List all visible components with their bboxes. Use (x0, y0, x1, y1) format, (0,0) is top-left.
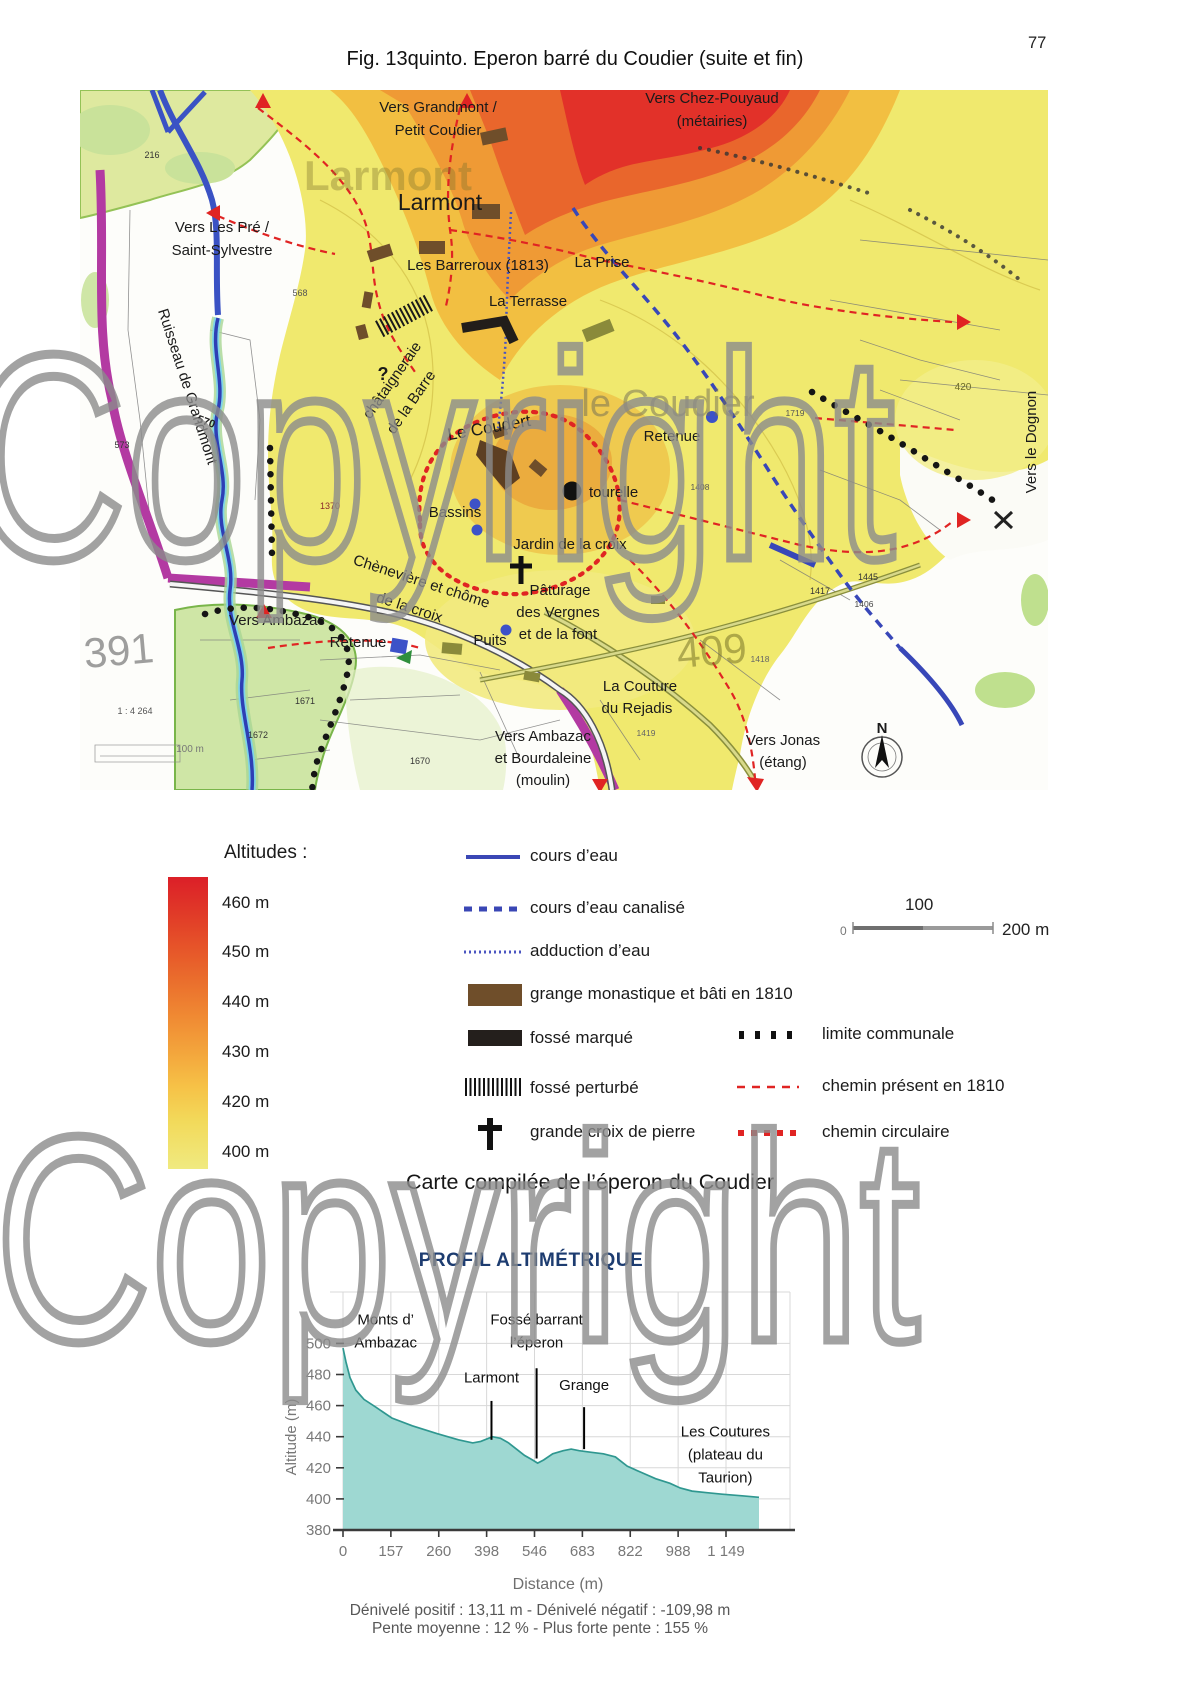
map-label: La Prise (574, 254, 629, 271)
chemin-circulaire-swatch (735, 1126, 801, 1140)
map-label: Saint-Sylvestre (172, 242, 273, 259)
scale-bar (835, 918, 1005, 938)
map-label: 1 : 4 264 (117, 706, 152, 716)
svg-text:Les Coutures: Les Coutures (681, 1424, 770, 1441)
altitude-label: 400 m (222, 1142, 269, 1162)
map-label: Puits (473, 632, 506, 649)
chart-xlabel: Distance (m) (513, 1576, 604, 1593)
map-label: N (877, 720, 888, 737)
legend-label: fossé perturbé (530, 1078, 639, 1098)
svg-text:1 149: 1 149 (707, 1543, 745, 1560)
map-label: 1419 (637, 728, 656, 738)
legend-altitudes-title: Altitudes : (224, 842, 307, 864)
map-label: ? (378, 364, 389, 384)
map-label: 100 m (176, 744, 204, 755)
limite-communale-swatch (735, 1028, 801, 1042)
map: Vers Grandmont /Petit CoudierVers Chez-P… (80, 90, 1048, 790)
legend-label: chemin présent en 1810 (822, 1076, 1004, 1096)
map-label: 573 (114, 440, 129, 450)
map-label: Pâturage (530, 582, 591, 599)
map-label: Larmont (398, 189, 483, 215)
map-label: 568 (292, 288, 307, 298)
map-label: 1671 (295, 696, 315, 706)
legend-label: chemin circulaire (822, 1122, 950, 1142)
document-page: Fig. 13quinto. Eperon barré du Coudier (… (0, 0, 1191, 1684)
cours-eau-swatch (462, 850, 524, 864)
map-label: Vers Ambazac (229, 612, 325, 629)
map-label: La Terrasse (489, 293, 567, 310)
fosse-perturbe-swatch (462, 1076, 526, 1098)
figure-title: Fig. 13quinto. Eperon barré du Coudier (… (250, 48, 900, 71)
map-label: 1719 (786, 408, 805, 418)
svg-text:Larmont: Larmont (464, 1369, 520, 1386)
scale-zero: 0 (840, 924, 847, 938)
map-label: La Couture (603, 678, 677, 695)
map-label: Petit Coudier (395, 122, 482, 139)
legend-label: cours d’eau canalisé (530, 898, 685, 918)
svg-text:Taurion): Taurion) (698, 1470, 752, 1487)
map-label: 216 (144, 150, 159, 160)
map-label: et de la font (519, 626, 598, 643)
map-label: tourelle (589, 484, 638, 501)
map-label: 391 (82, 624, 156, 677)
svg-text:822: 822 (618, 1543, 643, 1560)
map-label: (métairies) (677, 113, 748, 130)
svg-text:Ambazac: Ambazac (354, 1335, 417, 1352)
legend-label: limite communale (822, 1024, 954, 1044)
map-label: Les Barreroux (1813) (407, 257, 549, 274)
svg-text:988: 988 (666, 1543, 691, 1560)
map-label: Vers Ambazac (495, 728, 591, 745)
svg-text:(plateau du: (plateau du (688, 1447, 763, 1464)
map-label: Vers Les Pré / (175, 219, 270, 236)
legend-label: cours d’eau (530, 846, 618, 866)
map-label: Retenue (330, 634, 387, 651)
altitude-label: 460 m (222, 893, 269, 913)
svg-text:460: 460 (306, 1398, 331, 1415)
svg-text:260: 260 (426, 1543, 451, 1560)
map-label: (châtellenie) (1046, 401, 1048, 483)
map-label: (étang) (759, 754, 807, 771)
altitude-label: 440 m (222, 992, 269, 1012)
svg-text:Monts d’: Monts d’ (357, 1312, 414, 1329)
svg-text:440: 440 (306, 1429, 331, 1446)
svg-text:420: 420 (306, 1460, 331, 1477)
svg-text:500: 500 (306, 1335, 331, 1352)
grange-swatch (466, 982, 524, 1008)
map-label: et Bourdaleine (495, 750, 592, 767)
map-label: 1670 (410, 756, 430, 766)
altitude-label: 450 m (222, 942, 269, 962)
map-label: Vers Chez-Pouyaud (645, 90, 778, 107)
legend-altitude-colorbar (168, 877, 208, 1169)
scale-200m: 200 m (1002, 920, 1049, 940)
scale-100: 100 (905, 895, 933, 915)
chart-ylabel: Altitude (m) (283, 1399, 300, 1476)
map-label: 420 (955, 382, 972, 393)
svg-text:480: 480 (306, 1367, 331, 1384)
map-label: du Rejadis (602, 700, 673, 717)
retenue-icon (390, 638, 408, 655)
page-number: 77 (1028, 34, 1046, 53)
map-label: Vers Grandmont / (379, 99, 497, 116)
map-label: le Coudier (581, 383, 755, 425)
altitude-label: 430 m (222, 1042, 269, 1062)
altimetric-profile-chart: 5004804604404204003800157260398546683822… (280, 1240, 900, 1600)
svg-text:0: 0 (339, 1543, 347, 1560)
chart-footer-1: Dénivelé positif : 13,11 m - Dénivelé né… (240, 1602, 840, 1620)
map-label: 1417 (810, 586, 830, 596)
map-label: Vers le Dognon (1023, 391, 1040, 494)
svg-text:Fossé barrant: Fossé barrant (490, 1312, 583, 1329)
adduction-eau-swatch (462, 945, 524, 959)
map-label: 1408 (691, 482, 710, 492)
map-label: des Vergnes (516, 604, 599, 621)
svg-text:546: 546 (522, 1543, 547, 1560)
chart-footer-2: Pente moyenne : 12 % - Plus forte pente … (240, 1620, 840, 1638)
map-label: (moulin) (516, 772, 570, 789)
tourelle-dot (563, 482, 582, 501)
map-label: 1406 (855, 599, 874, 609)
svg-text:l’éperon: l’éperon (510, 1335, 563, 1352)
fosse-marque-swatch (466, 1028, 524, 1048)
legend-label: adduction d’eau (530, 941, 650, 961)
grande-croix-swatch (470, 1114, 510, 1154)
legend-label: grange monastique et bâti en 1810 (530, 984, 793, 1004)
legend-label: fossé marqué (530, 1028, 633, 1048)
map-label: Retenue (644, 428, 701, 445)
altitude-label: 420 m (222, 1092, 269, 1112)
svg-text:398: 398 (474, 1543, 499, 1560)
map-label: Bassins (429, 504, 482, 521)
svg-text:400: 400 (306, 1491, 331, 1508)
map-label: Jardin de la croix (513, 536, 627, 553)
chemin-1810-swatch (735, 1080, 801, 1094)
svg-text:380: 380 (306, 1522, 331, 1539)
bassin-dot (472, 525, 483, 536)
svg-text:683: 683 (570, 1543, 595, 1560)
map-label: 1370 (320, 501, 340, 511)
map-label: 1445 (858, 572, 878, 582)
map-caption: Carte compilée de l’éperon du Coudier (330, 1170, 850, 1195)
legend-label: grande croix de pierre (530, 1122, 695, 1142)
map-label: Vers Jonas (746, 732, 820, 749)
svg-text:Grange: Grange (559, 1377, 609, 1394)
map-label: 1418 (751, 654, 770, 664)
map-label: 1672 (248, 730, 268, 740)
map-label: 409 (675, 624, 749, 677)
cours-eau-canalise-swatch (462, 902, 524, 916)
svg-text:157: 157 (378, 1543, 403, 1560)
